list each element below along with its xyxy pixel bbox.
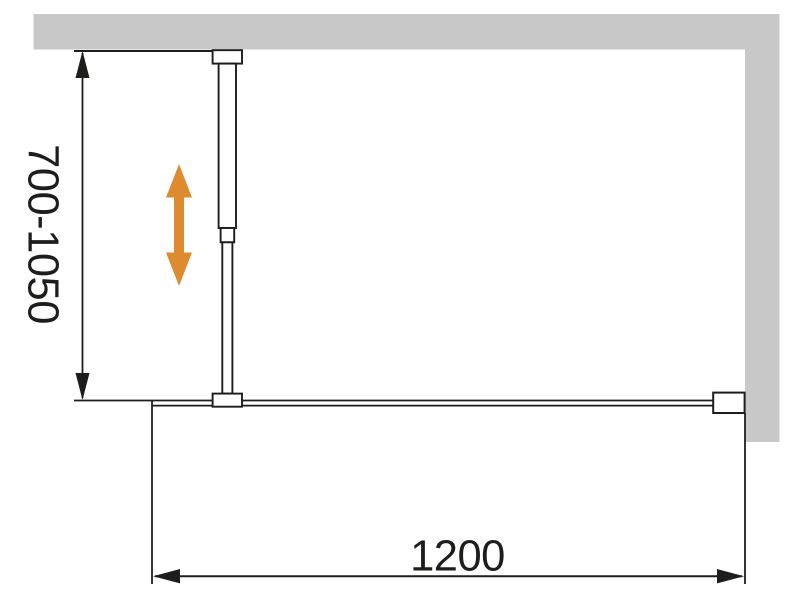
svg-text:1200: 1200 [410,533,505,581]
svg-text:700-1050: 700-1050 [19,144,67,324]
